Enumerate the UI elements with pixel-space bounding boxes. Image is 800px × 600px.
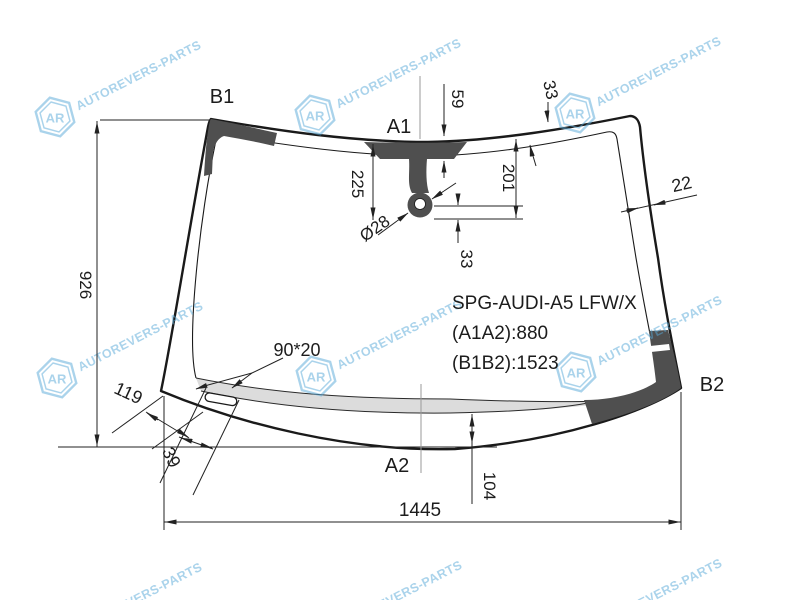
dim-39-label: 39 — [158, 444, 185, 471]
dim-33-mid-label: 33 — [457, 250, 476, 269]
watermark-logo-text: AR — [566, 107, 585, 122]
watermark: AR AUTOREVERS-PARTS — [294, 558, 464, 600]
watermark-brand: AUTOREVERS-PARTS — [74, 38, 204, 113]
dim-33-top-label: 33 — [539, 79, 562, 101]
watermark: AR AUTOREVERS-PARTS — [554, 556, 724, 600]
windshield-diagram: AR AUTOREVERS-PARTS AR AUTOREVERS-PARTS … — [0, 0, 800, 600]
watermark: AR AUTOREVERS-PARTS — [293, 36, 463, 139]
part-code: SPG-AUDI-A5 LFW/X — [452, 293, 637, 314]
dim-104-label: 104 — [480, 472, 499, 500]
point-label-a2: A2 — [385, 455, 409, 477]
part-b1b2-distance: (B1B2):1523 — [452, 353, 559, 374]
watermark: AR AUTOREVERS-PARTS — [33, 38, 203, 141]
dim-119-label: 119 — [111, 378, 145, 408]
dim-22-label: 22 — [670, 172, 694, 196]
dim-201-label: 201 — [499, 164, 518, 192]
point-label-b2: B2 — [700, 374, 724, 396]
watermark-logo-text: AR — [306, 109, 325, 124]
part-a1a2-distance: (A1A2):880 — [452, 323, 548, 344]
a1-mount-stem — [409, 159, 429, 193]
watermark-logo-text: AR — [48, 372, 67, 387]
watermark: AR AUTOREVERS-PARTS — [34, 560, 204, 600]
watermark-logo-text: AR — [567, 366, 586, 381]
dim-225-label: 225 — [348, 170, 367, 198]
dim-59-label: 59 — [448, 90, 467, 109]
point-label-b1: B1 — [210, 86, 234, 108]
diagram-canvas: AR AUTOREVERS-PARTS AR AUTOREVERS-PARTS … — [0, 0, 800, 600]
watermark-brand: AUTOREVERS-PARTS — [335, 558, 465, 600]
dim-height-label: 926 — [76, 271, 95, 299]
dim-slot-label: 90*20 — [273, 340, 320, 360]
watermark-logo-text: AR — [46, 111, 65, 126]
watermark-brand: AUTOREVERS-PARTS — [595, 556, 725, 600]
mirror-mount-hole — [415, 199, 426, 210]
watermark-brand: AUTOREVERS-PARTS — [594, 34, 724, 109]
watermark-brand: AUTOREVERS-PARTS — [75, 560, 205, 600]
watermark-logo-text: AR — [307, 370, 326, 385]
dim-width-label: 1445 — [399, 500, 441, 521]
point-label-a1: A1 — [387, 116, 411, 138]
a1-mirror-mount — [364, 142, 467, 159]
